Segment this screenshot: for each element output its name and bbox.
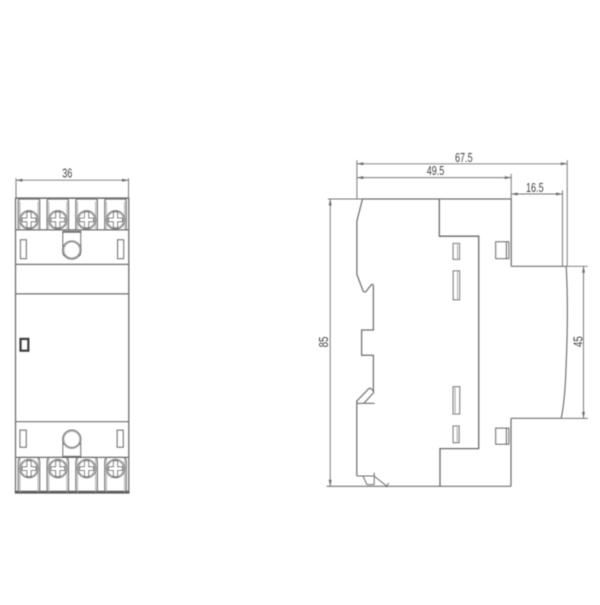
- svg-text:49.5: 49.5: [427, 163, 445, 178]
- svg-text:85: 85: [316, 337, 331, 348]
- svg-text:16.5: 16.5: [526, 180, 544, 195]
- svg-text:67.5: 67.5: [455, 150, 473, 165]
- svg-text:36: 36: [62, 165, 72, 180]
- svg-text:45: 45: [571, 336, 586, 347]
